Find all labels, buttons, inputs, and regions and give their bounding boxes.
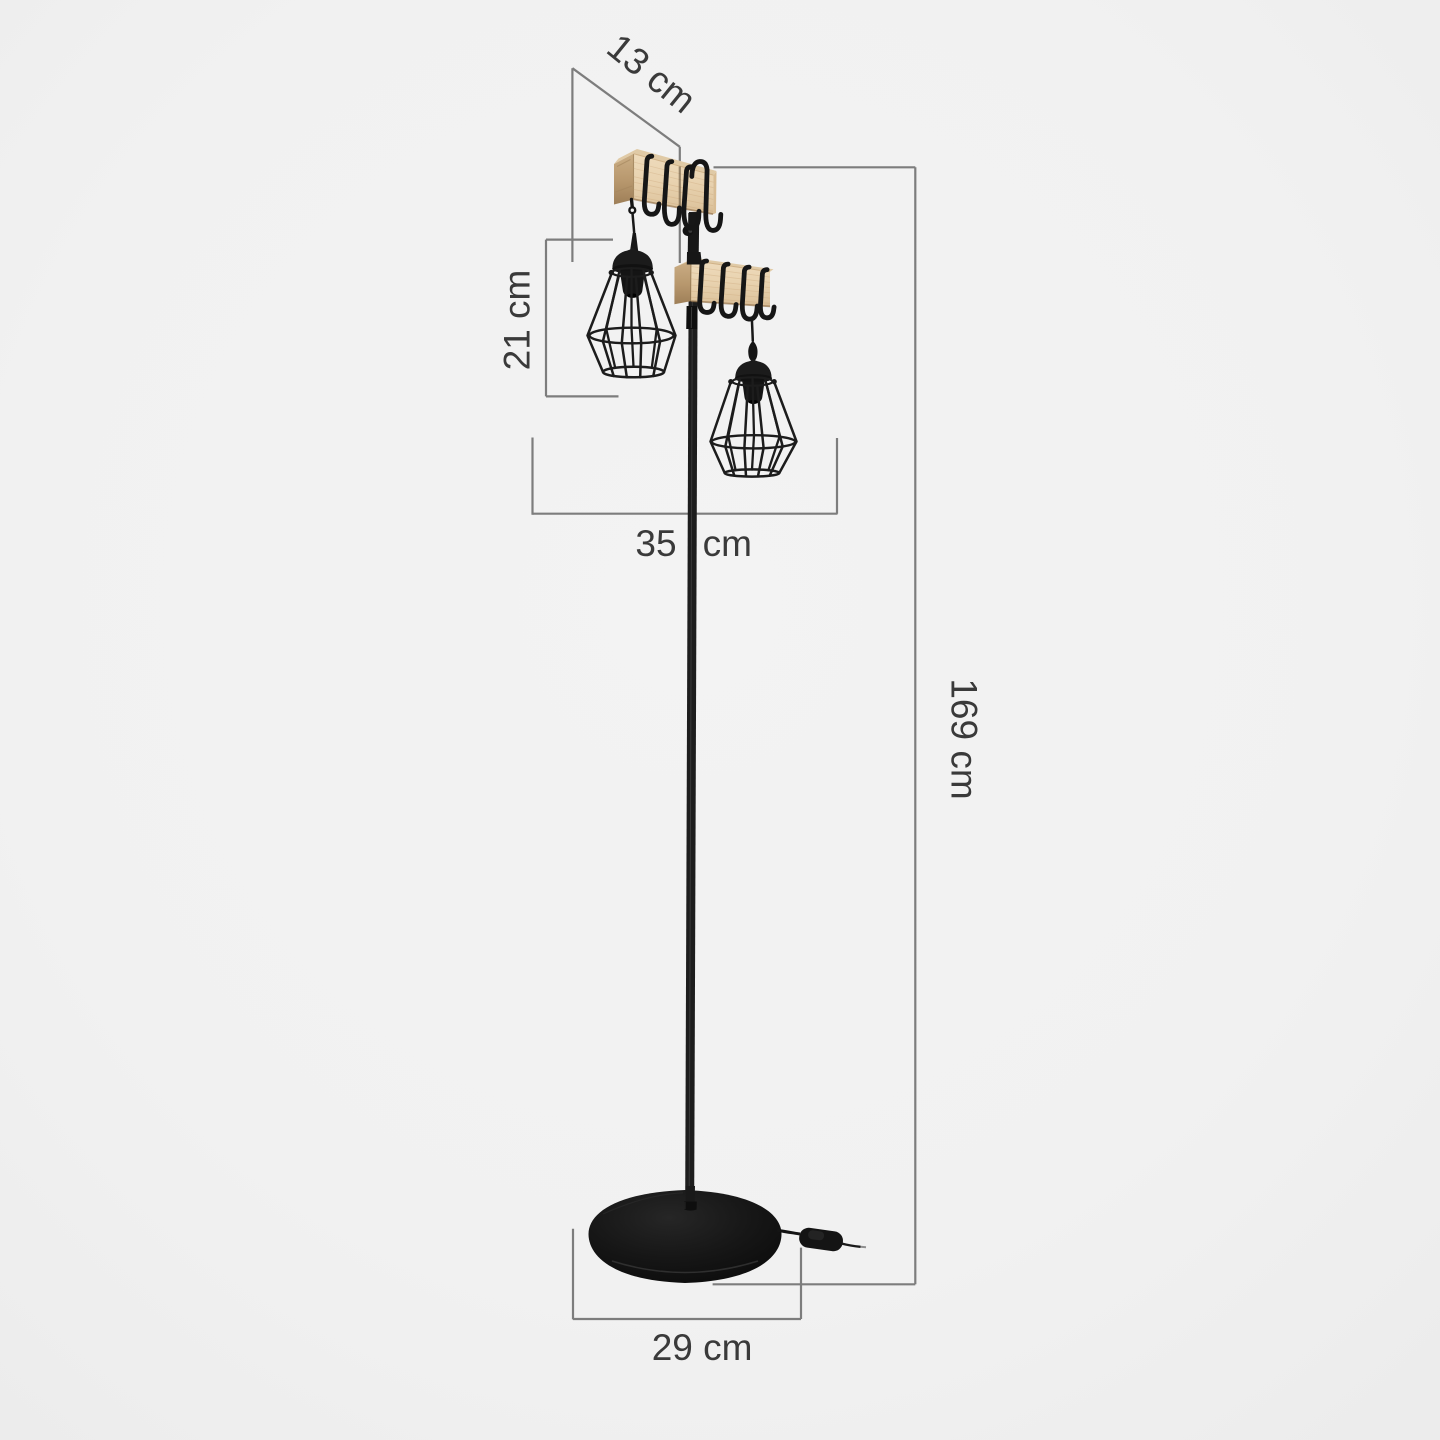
svg-text:29 cm: 29 cm	[652, 1327, 753, 1368]
svg-text:cm: cm	[703, 523, 752, 564]
svg-text:35: 35	[635, 523, 676, 564]
svg-text:169 cm: 169 cm	[944, 678, 985, 799]
svg-text:21 cm: 21 cm	[497, 270, 538, 371]
